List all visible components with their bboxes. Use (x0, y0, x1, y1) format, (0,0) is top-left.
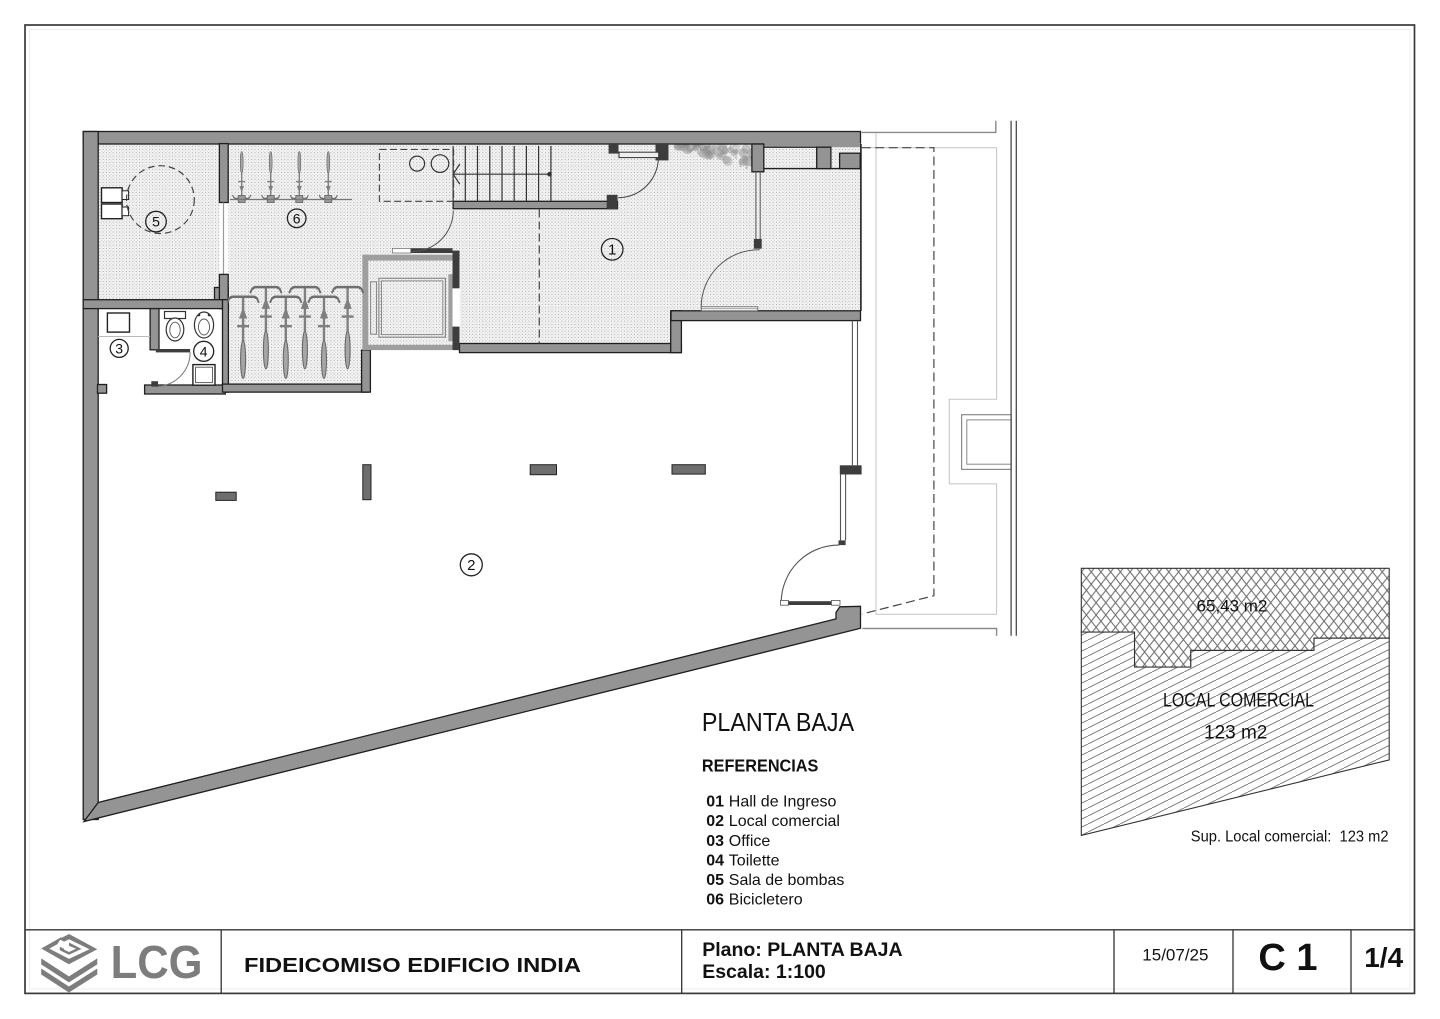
svg-text:65,43 m2: 65,43 m2 (1197, 596, 1268, 615)
svg-text:Office: Office (729, 833, 771, 850)
svg-text:REFERENCIAS: REFERENCIAS (702, 756, 819, 776)
svg-text:Local comercial: Local comercial (729, 813, 840, 830)
svg-text:Hall de Ingreso: Hall de Ingreso (729, 794, 837, 811)
svg-text:Bicicletero: Bicicletero (729, 892, 803, 909)
svg-text:PLANTA BAJA: PLANTA BAJA (702, 707, 855, 737)
svg-text:Escala: 1:100: Escala: 1:100 (702, 961, 826, 983)
svg-text:5: 5 (152, 214, 160, 230)
svg-text:15/07/25: 15/07/25 (1142, 946, 1208, 965)
svg-text:LCG: LCG (111, 936, 203, 988)
svg-text:04: 04 (706, 852, 724, 869)
svg-text:Toilette: Toilette (729, 852, 780, 869)
svg-text:01: 01 (706, 794, 724, 811)
svg-text:C 1: C 1 (1258, 937, 1317, 979)
svg-text:2: 2 (467, 557, 475, 574)
svg-text:4: 4 (200, 343, 208, 359)
svg-text:05: 05 (706, 872, 724, 889)
svg-text:123 m2: 123 m2 (1204, 723, 1267, 744)
svg-text:LOCAL COMERCIAL: LOCAL COMERCIAL (1163, 691, 1314, 712)
svg-text:Sala de bombas: Sala de bombas (729, 872, 845, 889)
svg-text:Plano: PLANTA BAJA: Plano: PLANTA BAJA (702, 939, 902, 961)
svg-text:06: 06 (706, 892, 724, 909)
svg-text:1/4: 1/4 (1364, 942, 1403, 973)
svg-text:1: 1 (608, 242, 616, 259)
svg-text:Sup. Local comercial: 123 m2: Sup. Local comercial: 123 m2 (1191, 828, 1389, 845)
svg-text:3: 3 (115, 340, 123, 356)
svg-text:FIDEICOMISO EDIFICIO INDIA: FIDEICOMISO EDIFICIO INDIA (244, 954, 581, 977)
svg-text:02: 02 (706, 813, 724, 830)
svg-text:6: 6 (293, 210, 301, 226)
svg-text:03: 03 (706, 833, 724, 850)
